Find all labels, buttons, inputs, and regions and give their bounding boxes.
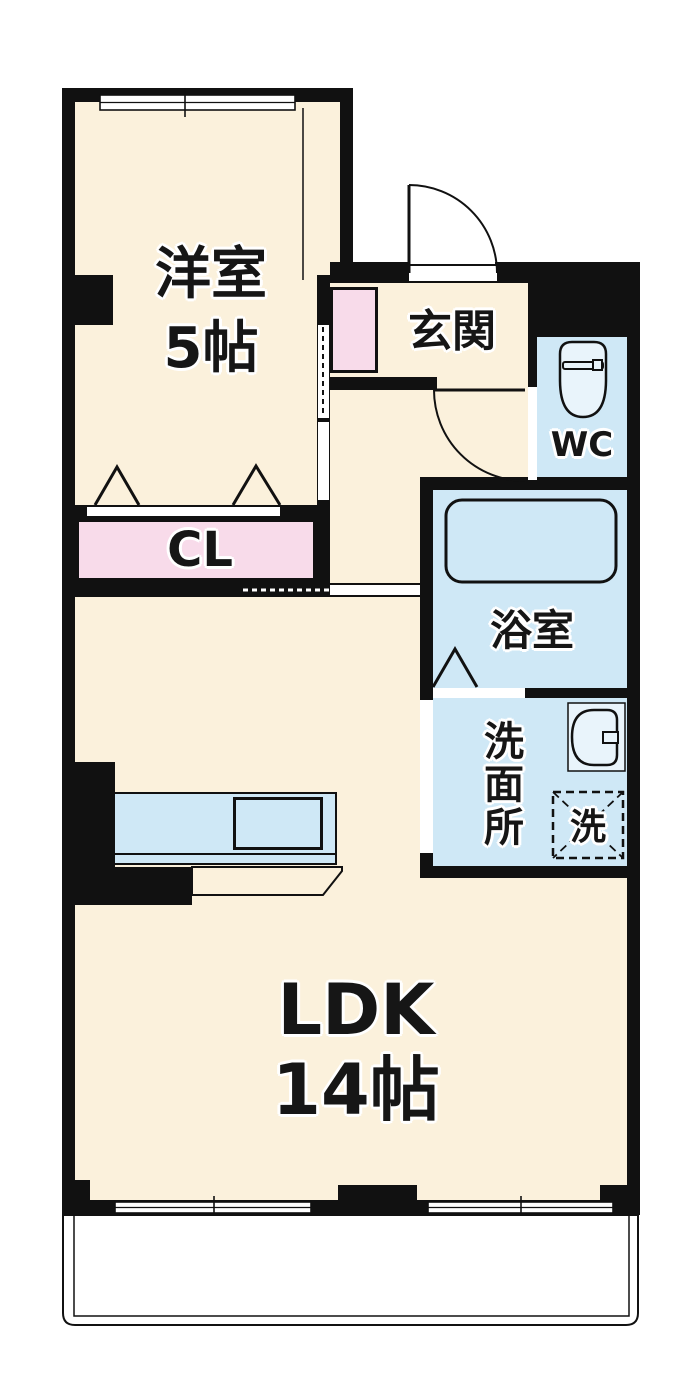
balcony-outline xyxy=(63,1215,638,1325)
kitchen-cabinet-outline xyxy=(192,867,342,895)
toilet-icon xyxy=(560,342,606,417)
fixtures-layer xyxy=(0,0,700,1397)
closet-fold-triangle-left xyxy=(95,467,139,505)
label-yoshitsu-name: 洋室 xyxy=(96,238,326,312)
entry-door-icon xyxy=(409,185,497,273)
label-senmenjo: 洗面所 xyxy=(476,714,522,854)
label-genkan: 玄関 xyxy=(382,308,522,356)
label-yoshitsu: 洋室 5帖 xyxy=(96,238,326,386)
bathtub-icon xyxy=(446,500,616,582)
label-closet: CL xyxy=(85,524,315,576)
hall-door-icon xyxy=(434,390,525,481)
label-ldk: LDK 14帖 xyxy=(196,970,516,1130)
label-yoshitsu-size: 5帖 xyxy=(96,312,326,386)
bath-fold-triangle xyxy=(433,649,477,687)
closet-fold-triangle-right xyxy=(233,466,280,505)
label-ldk-name: LDK xyxy=(196,970,516,1050)
label-wc: WC xyxy=(537,426,627,464)
label-bath: 浴室 xyxy=(437,608,627,654)
label-laundry: 洗 xyxy=(553,808,623,848)
wash-basin-icon xyxy=(568,703,625,771)
floor-plan: 洋室 5帖 玄関 WC CL 浴室 洗面所 洗 LDK 14帖 xyxy=(0,0,700,1397)
window-yoshitsu-top xyxy=(100,88,295,117)
label-ldk-size: 14帖 xyxy=(196,1050,516,1130)
